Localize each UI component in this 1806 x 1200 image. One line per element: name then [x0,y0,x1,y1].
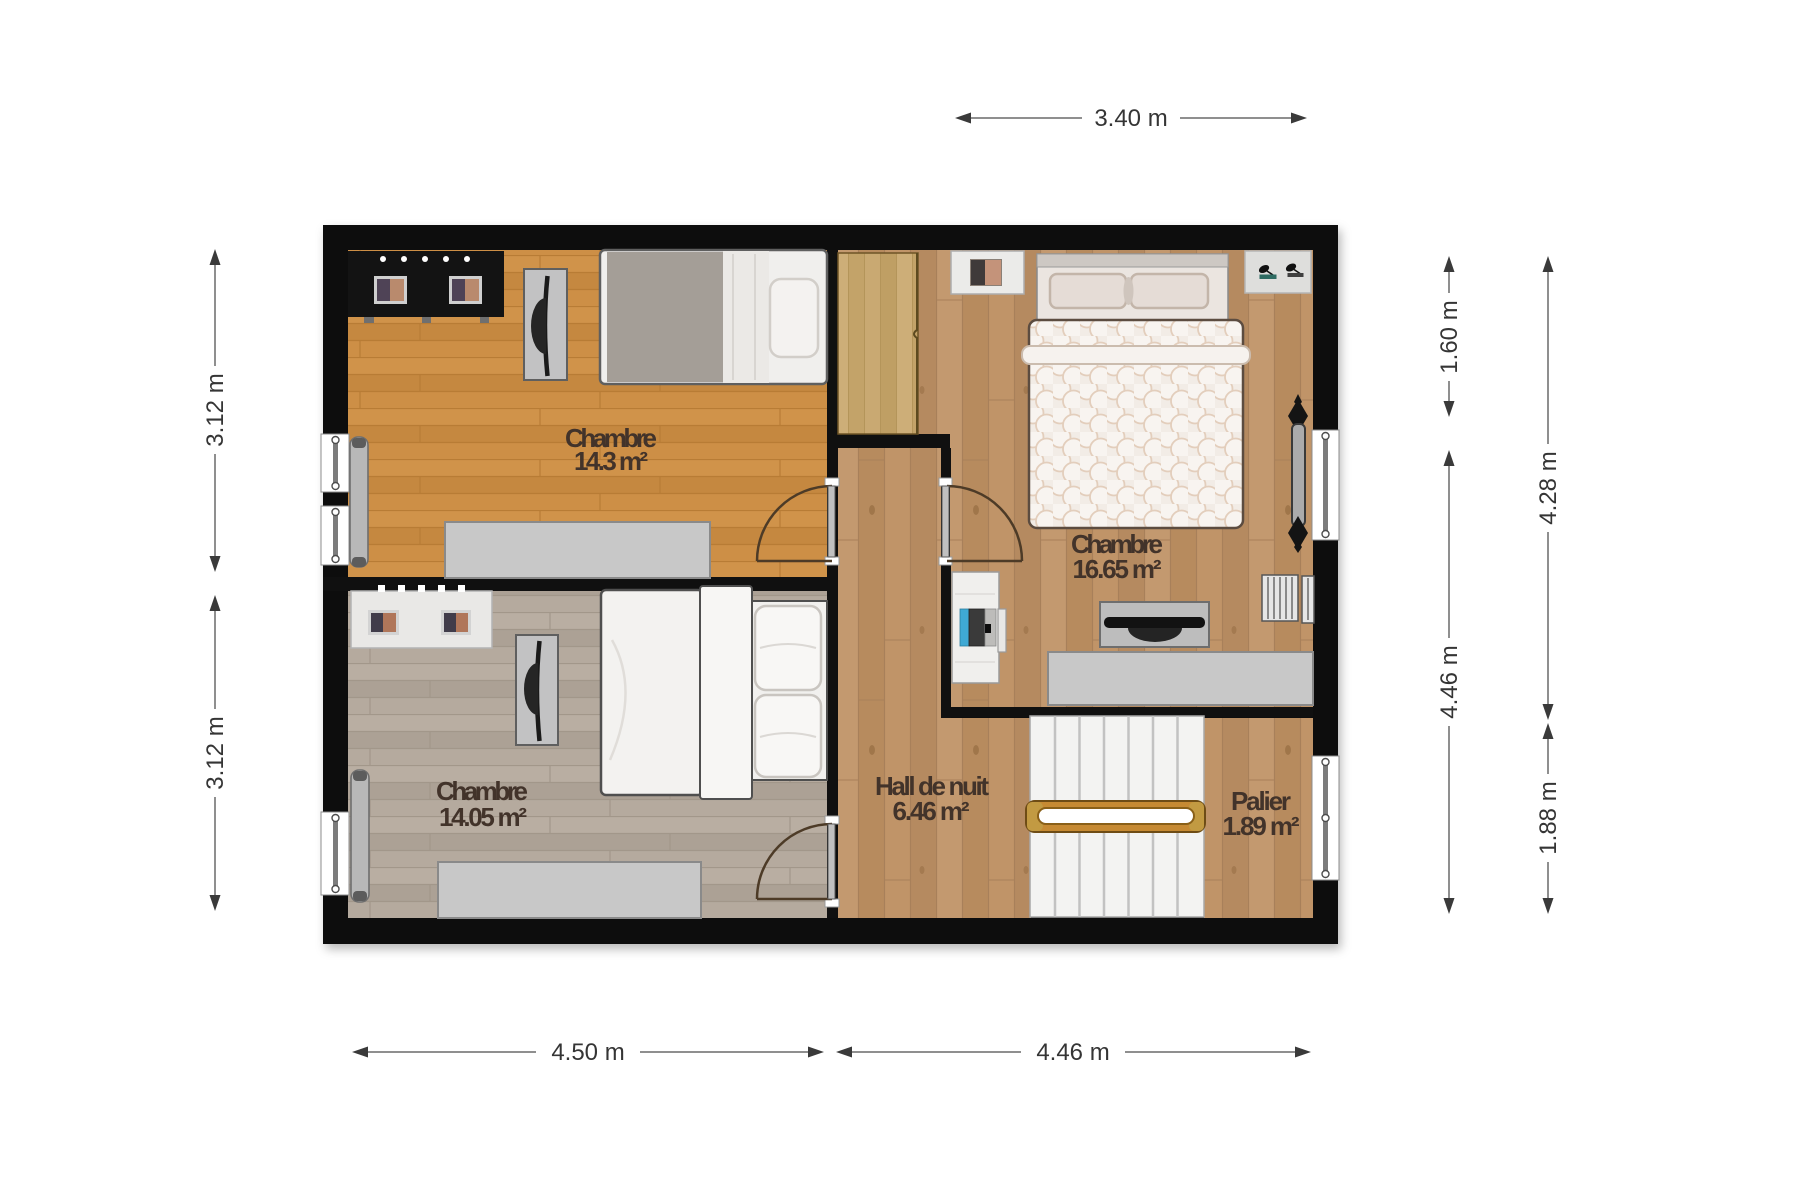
svg-text:3.40 m: 3.40 m [1094,105,1167,132]
svg-text:14.3 m²: 14.3 m² [574,446,648,476]
svg-text:4.46 m: 4.46 m [1036,1039,1109,1066]
svg-text:16.65 m²: 16.65 m² [1073,554,1162,584]
svg-text:4.50 m: 4.50 m [551,1039,624,1066]
svg-text:1.60 m: 1.60 m [1436,300,1463,373]
svg-text:3.12 m: 3.12 m [202,716,229,789]
svg-text:6.46 m²: 6.46 m² [893,796,970,826]
svg-text:1.88 m: 1.88 m [1535,781,1562,854]
svg-text:3.12 m: 3.12 m [202,373,229,446]
svg-text:1.89 m²: 1.89 m² [1223,811,1300,841]
svg-text:4.28 m: 4.28 m [1535,451,1562,524]
svg-text:4.46 m: 4.46 m [1436,645,1463,718]
svg-text:14.05 m²: 14.05 m² [439,802,527,832]
